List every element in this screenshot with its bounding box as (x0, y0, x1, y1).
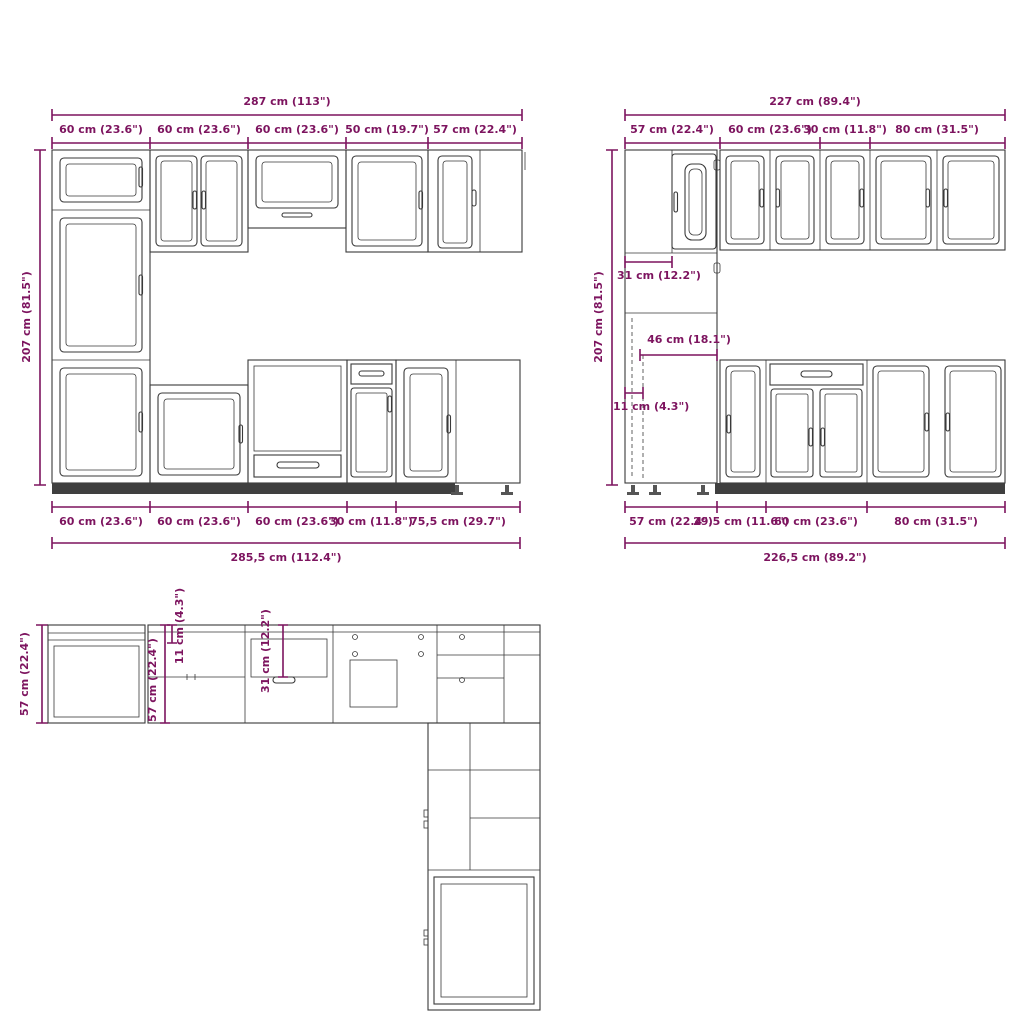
plan-dim-depth-inner: 57 cm (22.4") (146, 625, 170, 723)
plinth (52, 483, 455, 494)
right-dim-total-top: 227 cm (89.4") (625, 95, 1005, 121)
left-dim-total-top: 287 cm (113") (52, 95, 522, 121)
adjustable-feet (451, 485, 513, 495)
dim-label-plan-11: 11 cm (4.3") (173, 588, 186, 664)
dim-31cm: 31 cm (12.2") (617, 256, 701, 282)
plan-view: 57 cm (22.4") 57 cm (22.4") (15, 580, 565, 1024)
dim-label: 60 cm (23.6") (59, 123, 143, 136)
dim-label: 60 cm (23.6") (255, 515, 339, 528)
dim-label-46: 46 cm (18.1") (647, 333, 731, 346)
wall-cabinet-corner-57 (428, 150, 525, 252)
dim-label-plan-31: 31 cm (12.2") (259, 609, 272, 693)
right-base-cabinets (720, 360, 1005, 483)
left-elevation-view: 287 cm (113") 60 cm (23.6") 60 cm (23.6"… (20, 88, 550, 578)
dim-label: 57 cm (22.4") (433, 123, 517, 136)
oven-housing (248, 360, 347, 483)
dim-label-total-top-left: 287 cm (113") (243, 95, 330, 108)
dim-label: 80 cm (31.5") (894, 515, 978, 528)
left-dim-total-bottom: 285,5 cm (112.4") (52, 537, 520, 564)
wall-cabinet-60-double (150, 150, 248, 252)
tall-cabinet-57 (625, 150, 720, 483)
dim-label: 30 cm (11.8") (803, 123, 887, 136)
dim-label: 60 cm (23.6") (774, 515, 858, 528)
dim-label: 80 cm (31.5") (895, 123, 979, 136)
dim-label-depth-left: 57 cm (22.4") (18, 632, 31, 716)
dim-label: 30 cm (11.8") (329, 515, 413, 528)
dim-label: 60 cm (23.6") (59, 515, 143, 528)
left-dim-height: 207 cm (81.5") (20, 150, 46, 485)
base-cabinet-corner (396, 360, 520, 483)
right-elevation-view: 227 cm (89.4") 57 cm (22.4") 60 cm (23.6… (585, 88, 1024, 578)
dim-label-11: 11 cm (4.3") (613, 400, 689, 413)
dim-label: 75,5 cm (29.7") (410, 515, 506, 528)
dim-label: 60 cm (23.6") (728, 123, 812, 136)
dim-label-31: 31 cm (12.2") (617, 269, 701, 282)
right-dim-total-bottom: 226,5 cm (89.2") (625, 537, 1005, 564)
base-cabinet-30 (347, 360, 396, 483)
plan-dim-11: 11 cm (4.3") (167, 588, 186, 664)
base-cabinet-60 (150, 385, 248, 483)
right-dim-bottom-segments: 57 cm (22.4") 29,5 cm (11.6") 60 cm (23.… (625, 501, 1005, 528)
dim-label-total-top-right: 227 cm (89.4") (769, 95, 861, 108)
dim-label: 50 cm (19.7") (345, 123, 429, 136)
right-wall-cabinets (720, 150, 1005, 250)
wall-cabinet-50 (346, 150, 428, 252)
dim-label-height-right: 207 cm (81.5") (592, 271, 605, 363)
kitchen-dimension-diagram: 287 cm (113") 60 cm (23.6") 60 cm (23.6"… (0, 0, 1024, 1024)
dim-label-height-left: 207 cm (81.5") (20, 271, 33, 363)
left-dim-top-segments: 60 cm (23.6") 60 cm (23.6") 60 cm (23.6"… (52, 123, 522, 149)
left-dim-bottom-segments: 60 cm (23.6") 60 cm (23.6") 60 cm (23.6"… (52, 501, 520, 528)
right-dim-top-segments: 57 cm (22.4") 60 cm (23.6") 30 cm (11.8"… (625, 123, 1005, 149)
dim-label: 60 cm (23.6") (157, 515, 241, 528)
plan-dim-depth-left: 57 cm (22.4") (18, 625, 48, 723)
plan-vertical-run (424, 723, 540, 1010)
dim-11cm: 11 cm (4.3") (613, 387, 689, 413)
right-dim-height: 207 cm (81.5") (592, 150, 618, 485)
tall-cabinet-60 (52, 150, 150, 483)
dim-label-total-bottom-left: 285,5 cm (112.4") (230, 551, 341, 564)
adjustable-feet (627, 485, 709, 495)
dim-label: 60 cm (23.6") (157, 123, 241, 136)
dim-label: 60 cm (23.6") (255, 123, 339, 136)
plan-top-run (148, 625, 540, 723)
plinth (715, 483, 1005, 494)
dim-label: 57 cm (22.4") (630, 123, 714, 136)
dim-label-depth-inner: 57 cm (22.4") (146, 638, 159, 722)
plan-left-cabinet (48, 625, 145, 723)
dim-label-total-bottom-right: 226,5 cm (89.2") (763, 551, 866, 564)
wall-cabinet-60-flip (248, 150, 346, 228)
